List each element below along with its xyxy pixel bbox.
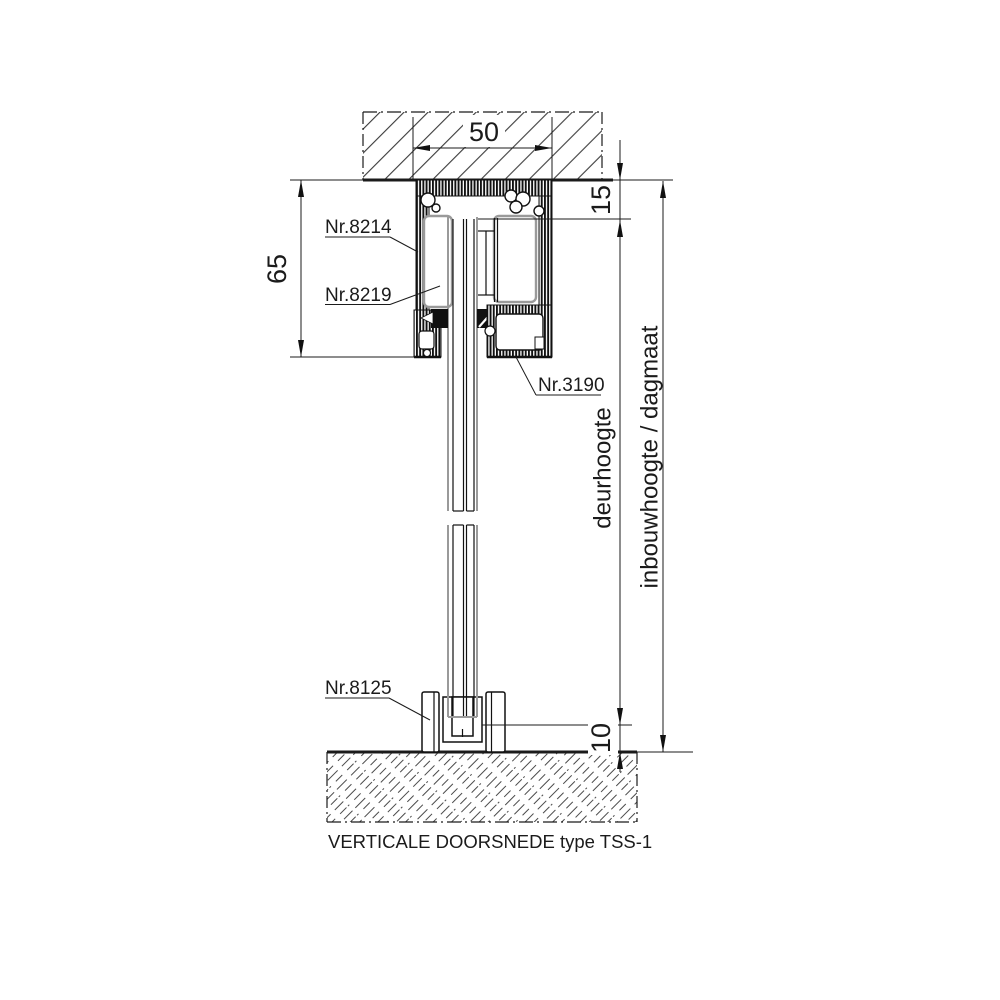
- dim-door-height-text: deurhoogte: [589, 407, 616, 528]
- label-nr8214-text: Nr.8214: [325, 217, 392, 238]
- track-top-band: [416, 180, 552, 196]
- floor-slab: [327, 752, 637, 822]
- label-nr8219-text: Nr.8219: [325, 285, 392, 306]
- guide-left-block: [422, 692, 439, 752]
- dimension-lines: [290, 117, 693, 772]
- roller-right: [494, 216, 536, 302]
- vertical-section-drawing: 50 65 15 10 deurhoogte inbouwhoogte / da…: [0, 0, 1000, 1000]
- part-label-nr3190: Nr.3190: [516, 357, 605, 396]
- dim-installation-height-text: inbouwhoogte / dagmaat: [636, 325, 663, 588]
- track-left-notch: [419, 331, 434, 349]
- cover-screw-hole: [485, 326, 495, 336]
- brush-seals: [421, 309, 496, 328]
- label-nr3190-leader: [516, 357, 536, 395]
- dim-10-text: 10: [586, 723, 616, 753]
- bottom-cover-profile: [485, 305, 552, 357]
- part-label-nr8125: Nr.8125: [325, 678, 430, 720]
- roller-inserts: [424, 216, 536, 307]
- label-nr3190-text: Nr.3190: [538, 375, 605, 396]
- technical-drawing-page: 50 65 15 10 deurhoogte inbouwhoogte / da…: [0, 0, 1000, 1000]
- guide-right-block: [486, 692, 505, 752]
- dim-15-text: 15: [586, 185, 616, 215]
- label-nr8214-leader: [390, 237, 418, 252]
- dim-50-text: 50: [469, 117, 499, 147]
- track-left-notch-circle: [424, 350, 431, 357]
- dim-65-text: 65: [262, 254, 292, 284]
- cover-notch: [535, 337, 544, 349]
- drawing-caption: VERTICALE DOORSNEDE type TSS-1: [328, 831, 652, 852]
- brush-seal-left: [431, 309, 448, 328]
- label-nr8125-text: Nr.8125: [325, 678, 392, 699]
- door-hanger-bracket: [478, 231, 494, 295]
- part-label-nr8214: Nr.8214: [325, 217, 418, 252]
- floor-hatch: [327, 752, 637, 822]
